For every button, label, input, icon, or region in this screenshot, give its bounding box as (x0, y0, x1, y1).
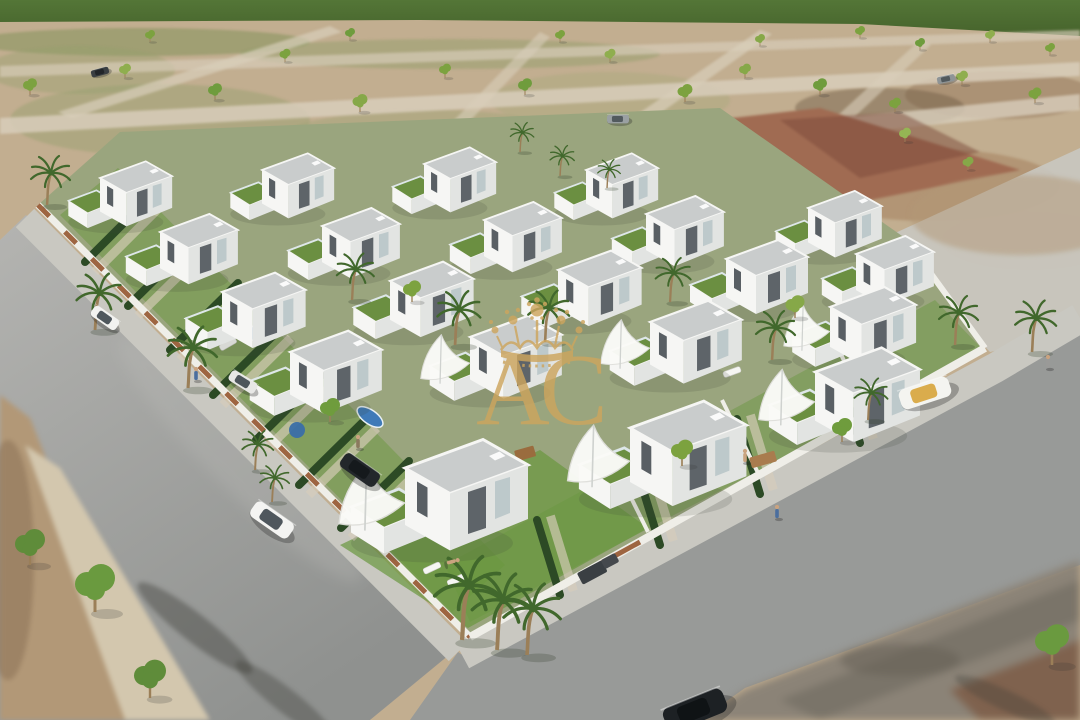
scene-svg: AC (0, 0, 1080, 720)
aerial-development-render: AC (0, 0, 1080, 720)
watermark-letters: AC (476, 334, 603, 447)
car (607, 115, 632, 127)
